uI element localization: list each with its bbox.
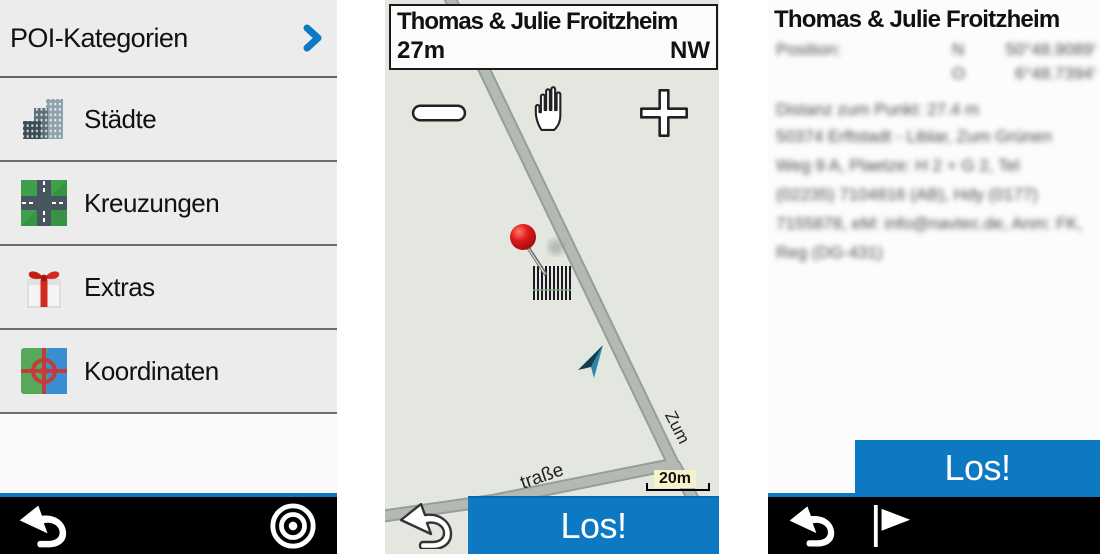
address-line: 7155878, eM: info@navtec.de, Anm: FK, — [776, 209, 1094, 238]
poi-categories-title: POI-Kategorien — [10, 23, 188, 54]
lon-value: 6°48.7394' — [978, 62, 1096, 86]
gift-icon — [21, 264, 67, 310]
back-button[interactable] — [786, 497, 836, 554]
poi-detail-screen: Thomas & Julie Froitzheim Position: N 50… — [768, 0, 1100, 554]
poi-categories-header[interactable]: POI-Kategorien — [0, 0, 337, 78]
map-crosshair-icon — [21, 348, 67, 394]
go-button-label: Los! — [944, 447, 1010, 489]
lat-hemisphere: N — [952, 38, 978, 62]
menu-item-label: Städte — [84, 104, 156, 135]
position-block: Position: N 50°48.9089' O 6°48.7394' Dis… — [776, 38, 1096, 122]
menu-item-label: Kreuzungen — [84, 188, 219, 219]
go-button[interactable]: Los! — [468, 496, 719, 554]
menu-item-koordinaten[interactable]: Koordinaten — [0, 330, 337, 414]
back-arrow-icon — [786, 505, 836, 547]
destination-title: Thomas & Julie Froitzheim — [397, 7, 710, 37]
flag-button[interactable] — [872, 497, 914, 554]
road-intersection-icon — [21, 180, 67, 226]
menu-item-staedte[interactable]: Städte — [0, 78, 337, 162]
go-button[interactable]: Los! — [855, 440, 1100, 495]
detail-bottom-bar — [768, 493, 1100, 554]
address-line: Weg 9 A, Plaetze: H 2 + G 2, Tel — [776, 151, 1094, 180]
address-block: 50374 Erftstadt - Liblar, Zum Grünen Weg… — [776, 122, 1094, 267]
back-button[interactable] — [16, 497, 68, 554]
go-button-label: Los! — [560, 505, 626, 547]
map-preview-screen: traße Zum 20m Thomas & Julie Froitzheim … — [385, 0, 719, 554]
destination-direction: NW — [670, 37, 710, 65]
chevron-right-icon — [303, 24, 323, 52]
map-back-button[interactable] — [397, 503, 453, 549]
flag-icon — [872, 503, 914, 549]
poi-detail-title: Thomas & Julie Froitzheim — [774, 6, 1059, 34]
plus-icon — [637, 86, 691, 140]
destination-info-box: Thomas & Julie Froitzheim 27m NW — [389, 4, 718, 70]
menu-item-kreuzungen[interactable]: Kreuzungen — [0, 162, 337, 246]
address-line: (02235) 7104816 (AB), Hdy (0177) — [776, 180, 1094, 209]
lat-value: 50°48.9089' — [978, 38, 1096, 62]
destination-distance: 27m — [397, 37, 445, 65]
pan-hand-button[interactable] — [533, 84, 571, 135]
address-line: Reg (DG-431) — [776, 238, 1094, 267]
back-arrow-icon — [16, 504, 68, 548]
poi-label-blurred — [533, 266, 571, 300]
hand-icon — [533, 84, 571, 132]
menu-item-extras[interactable]: Extras — [0, 246, 337, 330]
map-smudge — [548, 239, 564, 255]
menu-item-label: Koordinaten — [84, 356, 219, 387]
map-scale-line — [646, 483, 710, 491]
target-button[interactable] — [269, 497, 317, 554]
position-arrow-icon — [578, 345, 603, 378]
address-line: 50374 Erftstadt - Liblar, Zum Grünen — [776, 122, 1094, 151]
position-label: Position: — [776, 38, 952, 62]
left-bottom-bar — [0, 493, 337, 554]
zoom-in-button[interactable] — [637, 86, 691, 143]
zoom-out-button[interactable] — [411, 103, 467, 126]
back-arrow-outline-icon — [397, 503, 453, 549]
lon-hemisphere: O — [952, 62, 978, 86]
city-buildings-icon — [21, 96, 67, 142]
poi-pin-icon — [510, 224, 546, 275]
distance-to-point: Distanz zum Punkt: 27.4 m — [776, 98, 1096, 122]
poi-categories-screen: POI-Kategorien Städte — [0, 0, 337, 554]
minus-icon — [411, 103, 467, 123]
bullseye-target-icon — [269, 502, 317, 550]
menu-empty-area — [0, 414, 337, 493]
menu-item-label: Extras — [84, 272, 155, 303]
